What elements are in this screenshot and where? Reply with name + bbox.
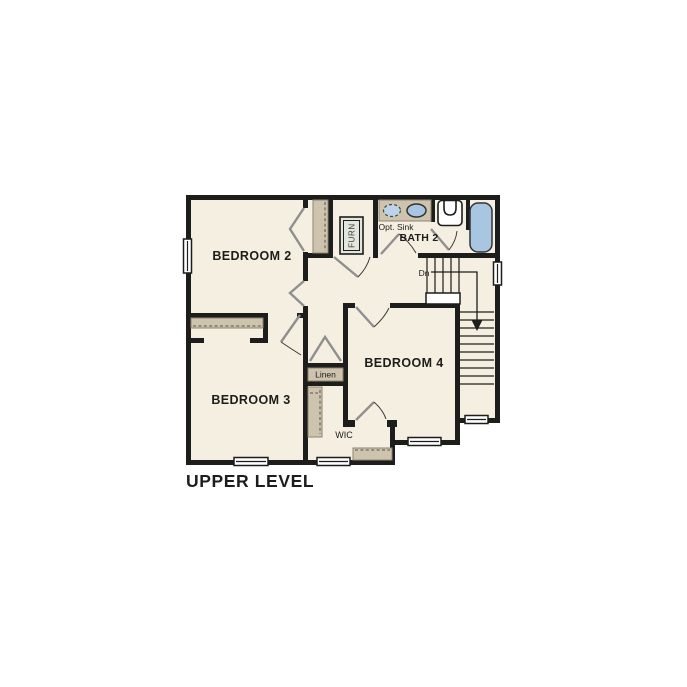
bedroom2-label: BEDROOM 2 (212, 249, 291, 263)
wall-bedroom3-top (186, 313, 268, 318)
linen-label: Linen (315, 370, 336, 380)
furnace-label: FURN (348, 223, 357, 248)
wic-label: WIC (335, 430, 353, 440)
wall-wic-north-left (343, 420, 355, 427)
stairs-landing (426, 293, 460, 304)
wall-exterior-bottom-left (186, 460, 395, 465)
stairs-down-label: Dn (419, 268, 430, 278)
wall-hallcloset-right (328, 200, 333, 258)
floor-plan-canvas: BEDROOM 2 BEDROOM 3 BEDROOM 4 BATH 2 Opt… (0, 0, 687, 687)
wall-exterior-top (186, 195, 500, 200)
wall-exterior-left (186, 195, 191, 465)
bath2-label: BATH 2 (400, 232, 439, 244)
wall-furnace-bath-divider (373, 200, 378, 258)
wall-bedroom4-left (343, 303, 348, 427)
wall-linen-bottom (308, 381, 343, 386)
optional-sink-basin (384, 205, 401, 217)
wall-bedroom3-right (303, 313, 308, 465)
sink-basin (407, 204, 426, 217)
bedroom4-label: BEDROOM 4 (364, 356, 443, 370)
hall-closet-shelf (313, 200, 328, 253)
wall-hall-top (303, 253, 332, 258)
wall-bedroom4-right (455, 303, 460, 445)
wall-closet-front-right (250, 338, 268, 343)
bedroom3-label: BEDROOM 3 (211, 393, 290, 407)
wall-exterior-right (495, 195, 500, 423)
wall-linen-top (308, 363, 343, 368)
toilet (438, 201, 462, 226)
wall-wic-east (390, 427, 395, 445)
bathtub (470, 203, 492, 252)
wall-wic-north-right (387, 420, 397, 427)
wall-closet-front-left (186, 338, 204, 343)
wall-bath-bottom (418, 253, 500, 258)
wall-bedroom2-right-a (303, 200, 308, 208)
floor-title: UPPER LEVEL (186, 471, 314, 491)
opt-sink-label: Opt. Sink (379, 222, 415, 232)
floor-plan-drawing: BEDROOM 2 BEDROOM 3 BEDROOM 4 BATH 2 Opt… (0, 0, 687, 687)
wall-vanity-toilet-divider (431, 200, 435, 222)
